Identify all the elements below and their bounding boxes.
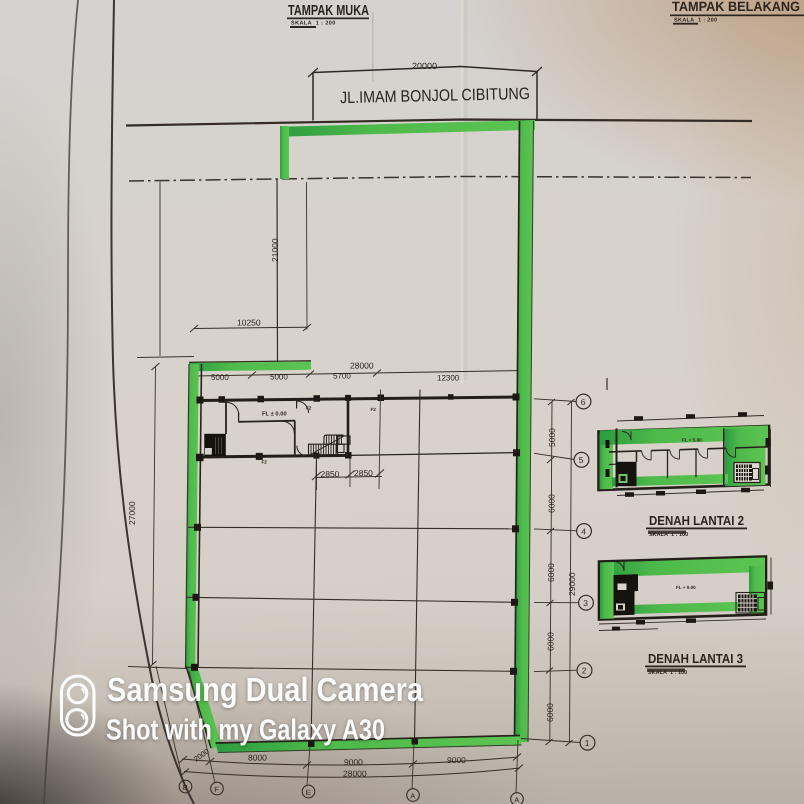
svg-text:FL + 9.00: FL + 9.00 xyxy=(676,585,696,590)
svg-text:29000: 29000 xyxy=(567,572,577,596)
svg-text:F2: F2 xyxy=(306,406,312,411)
svg-text:TAMPAK MUKA: TAMPAK MUKA xyxy=(288,3,369,19)
svg-text:27000: 27000 xyxy=(127,501,137,525)
svg-text:A: A xyxy=(410,791,415,800)
svg-text:5: 5 xyxy=(579,455,584,465)
svg-text:6000: 6000 xyxy=(545,703,555,722)
svg-text:6000: 6000 xyxy=(546,632,556,651)
svg-text:6000: 6000 xyxy=(547,494,557,513)
svg-text:2850: 2850 xyxy=(321,469,340,479)
svg-text:20000: 20000 xyxy=(412,61,437,71)
svg-text:E: E xyxy=(306,788,311,797)
svg-text:FL + 5.00: FL + 5.00 xyxy=(682,438,702,443)
svg-text:F2: F2 xyxy=(371,407,377,412)
svg-text:8000: 8000 xyxy=(248,753,267,763)
svg-text:Samsung Dual Camera: Samsung Dual Camera xyxy=(107,672,423,709)
svg-text:12300: 12300 xyxy=(437,374,460,383)
svg-text:DENAH LANTAI 2: DENAH LANTAI 2 xyxy=(649,513,744,528)
svg-text:10250: 10250 xyxy=(237,318,261,328)
svg-text:4: 4 xyxy=(581,526,586,536)
svg-text:DENAH LANTAI 3: DENAH LANTAI 3 xyxy=(648,651,743,666)
svg-text:2: 2 xyxy=(582,666,587,676)
svg-text:2850: 2850 xyxy=(354,468,373,478)
svg-text:5700: 5700 xyxy=(333,371,351,380)
svg-text:SKALA 1 : 200: SKALA 1 : 200 xyxy=(291,21,336,27)
svg-text:FL ± 0.00: FL ± 0.00 xyxy=(262,411,287,418)
svg-text:6: 6 xyxy=(581,397,586,407)
svg-text:F: F xyxy=(214,785,219,794)
svg-text:3: 3 xyxy=(583,598,588,608)
svg-text:5000: 5000 xyxy=(270,372,288,381)
svg-text:TAMPAK BELAKANG: TAMPAK BELAKANG xyxy=(672,0,800,14)
svg-text:28000: 28000 xyxy=(350,361,374,371)
svg-text:Shot with my Galaxy A30: Shot with my Galaxy A30 xyxy=(106,715,385,747)
svg-text:9000: 9000 xyxy=(447,755,466,765)
svg-text:B: B xyxy=(183,783,188,792)
svg-text:28000: 28000 xyxy=(343,769,367,779)
svg-text:21000: 21000 xyxy=(270,238,280,262)
svg-text:5000: 5000 xyxy=(211,373,229,382)
svg-text:JL.IMAM BONJOL CIBITUNG: JL.IMAM BONJOL CIBITUNG xyxy=(340,85,530,107)
svg-text:F2: F2 xyxy=(262,460,268,465)
svg-text:1: 1 xyxy=(585,738,590,748)
svg-text:5000: 5000 xyxy=(547,428,557,447)
svg-text:9000: 9000 xyxy=(344,757,363,767)
svg-text:A: A xyxy=(514,795,519,804)
svg-text:SKALA 1 : 200: SKALA 1 : 200 xyxy=(674,18,717,24)
svg-text:6000: 6000 xyxy=(546,563,556,582)
